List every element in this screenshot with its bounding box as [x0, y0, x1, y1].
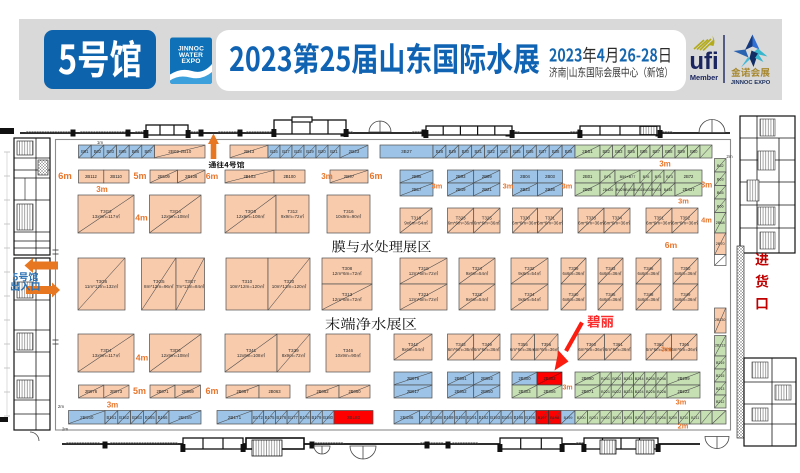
svg-text:2B213: 2B213	[715, 344, 725, 348]
svg-text:6x6m=36㎡: 6x6m=36㎡	[562, 270, 585, 276]
svg-text:2B103: 2B103	[243, 174, 256, 179]
svg-text:B192: B192	[479, 415, 489, 420]
svg-text:B02: B02	[94, 149, 102, 154]
svg-text:2B51: 2B51	[582, 149, 593, 154]
svg-text:6m*6m=36㎡: 6m*6m=36㎡	[578, 346, 604, 352]
svg-text:2B222: 2B222	[677, 389, 690, 394]
svg-text:2B09-2B10: 2B09-2B10	[168, 149, 191, 154]
svg-text:2B106: 2B106	[185, 174, 198, 179]
svg-text:2B29: 2B29	[583, 187, 593, 192]
svg-text:2B299: 2B299	[677, 376, 690, 381]
svg-text:B19: B19	[306, 149, 314, 154]
svg-text:B66: B66	[717, 205, 724, 209]
svg-text:2B72: 2B72	[684, 174, 694, 179]
svg-text:JINNOC EXPO: JINNOC EXPO	[731, 80, 771, 86]
svg-text:B16: B16	[270, 149, 278, 154]
svg-text:6x6m=36㎡: 6x6m=36㎡	[674, 296, 697, 302]
svg-text:6x6m=36㎡: 6x6m=36㎡	[637, 296, 660, 302]
svg-text:B199: B199	[564, 416, 573, 420]
svg-text:2B183: 2B183	[347, 415, 361, 420]
svg-text:B29: B29	[449, 149, 457, 154]
svg-text:2B68: 2B68	[716, 221, 725, 225]
svg-text:2B169: 2B169	[178, 415, 192, 420]
svg-text:B179: B179	[312, 415, 322, 420]
svg-text:B28: B28	[436, 149, 444, 154]
svg-text:2B01: 2B01	[583, 174, 593, 179]
svg-text:B222: B222	[612, 390, 621, 394]
svg-text:B21: B21	[330, 149, 338, 154]
svg-text:12m*6m=72㎡: 12m*6m=72㎡	[409, 270, 439, 276]
svg-text:B31: B31	[474, 149, 482, 154]
svg-text:B197: B197	[538, 416, 547, 420]
svg-text:B52: B52	[602, 149, 610, 154]
svg-text:B165: B165	[145, 415, 155, 420]
svg-text:9x6m=54㎡: 9x6m=54㎡	[404, 220, 428, 226]
svg-text:2B071: 2B071	[581, 389, 594, 394]
svg-text:B39: B39	[565, 149, 573, 154]
svg-text:6m*6m=36㎡: 6m*6m=36㎡	[537, 220, 563, 226]
svg-text:2B090: 2B090	[581, 376, 594, 381]
svg-text:B433: B433	[652, 188, 660, 192]
svg-text:B62: B62	[717, 164, 724, 168]
svg-text:2B95: 2B95	[412, 174, 422, 179]
svg-text:2B071: 2B071	[156, 389, 169, 394]
svg-text:6m: 6m	[205, 386, 218, 396]
svg-text:B213: B213	[716, 387, 724, 391]
svg-text:2m: 2m	[678, 422, 689, 431]
svg-text:B20: B20	[318, 149, 326, 154]
svg-text:B211: B211	[691, 416, 699, 420]
svg-text:2B073: 2B073	[110, 389, 123, 394]
svg-text:B37: B37	[539, 149, 547, 154]
svg-text:B200: B200	[577, 416, 586, 420]
svg-text:B166: B166	[158, 415, 168, 420]
svg-text:B431: B431	[634, 188, 642, 192]
svg-text:6m*6m=36㎡: 6m*6m=36㎡	[604, 220, 630, 226]
svg-text:3m: 3m	[503, 182, 514, 191]
svg-text:1m: 1m	[97, 140, 104, 145]
svg-text:8m*12m=96㎡: 8m*12m=96㎡	[144, 283, 174, 289]
svg-text:8x9m=72㎡: 8x9m=72㎡	[282, 352, 306, 358]
svg-text:12x9m=108㎡: 12x9m=108㎡	[161, 352, 190, 358]
svg-text:2B112: 2B112	[85, 174, 97, 179]
svg-text:2B302: 2B302	[543, 376, 556, 381]
svg-text:12m*6m=72㎡: 12m*6m=72㎡	[409, 296, 439, 302]
svg-text:2B063: 2B063	[268, 389, 281, 394]
svg-text:B176: B176	[276, 415, 286, 420]
svg-text:B32: B32	[487, 149, 495, 154]
svg-text:3m: 3m	[321, 172, 333, 181]
svg-text:B245: B245	[646, 377, 655, 381]
svg-text:6m*6m=36㎡: 6m*6m=36㎡	[510, 346, 536, 352]
svg-text:2B109: 2B109	[158, 174, 171, 179]
svg-text:B172: B172	[253, 415, 263, 420]
svg-text:ufi: ufi	[689, 48, 718, 75]
svg-text:B193: B193	[490, 415, 500, 420]
svg-text:6m: 6m	[206, 171, 219, 181]
svg-text:3m: 3m	[676, 398, 687, 407]
svg-text:B58: B58	[665, 149, 673, 154]
svg-text:2B079: 2B079	[407, 376, 420, 381]
svg-text:B198: B198	[550, 416, 559, 420]
svg-text:B226: B226	[657, 390, 666, 394]
svg-text:B57: B57	[652, 149, 660, 154]
svg-text:2m: 2m	[58, 404, 65, 409]
svg-text:B56: B56	[640, 149, 648, 154]
svg-text:B225: B225	[646, 390, 655, 394]
svg-text:2B171: 2B171	[228, 415, 242, 420]
svg-text:B429: B429	[616, 188, 624, 192]
svg-text:B206: B206	[635, 416, 643, 420]
svg-text:2B97: 2B97	[344, 174, 355, 179]
svg-text:B55: B55	[627, 149, 635, 154]
svg-text:B65: B65	[717, 191, 724, 195]
svg-text:2B160: 2B160	[80, 415, 94, 420]
svg-text:2B303: 2B303	[518, 389, 531, 394]
svg-text:6x6m=36㎡: 6x6m=36㎡	[637, 270, 660, 276]
svg-text:13x9m=117㎡: 13x9m=117㎡	[92, 352, 120, 358]
svg-text:B246: B246	[657, 377, 666, 381]
svg-text:6x6m=36㎡: 6x6m=36㎡	[674, 270, 697, 276]
svg-text:B219: B219	[716, 361, 724, 365]
svg-text:2B70: 2B70	[716, 242, 725, 246]
svg-text:B33: B33	[500, 149, 508, 154]
svg-text:3m: 3m	[562, 385, 572, 392]
svg-text:10x9m=90㎡: 10x9m=90㎡	[336, 213, 362, 219]
svg-text:12m*6m=72㎡: 12m*6m=72㎡	[332, 296, 362, 302]
svg-text:B162: B162	[119, 415, 129, 420]
svg-text:2B93: 2B93	[456, 174, 466, 179]
svg-text:12x9m=108㎡: 12x9m=108㎡	[237, 352, 266, 358]
svg-text:B195: B195	[514, 415, 524, 420]
svg-text:B07: B07	[144, 149, 152, 154]
svg-text:9x6m=54㎡: 9x6m=54㎡	[518, 270, 541, 276]
svg-text:2B017: 2B017	[407, 389, 420, 394]
svg-text:9x6m=54㎡: 9x6m=54㎡	[466, 296, 489, 302]
svg-text:6m*6m=36㎡: 6m*6m=36㎡	[646, 220, 672, 226]
svg-text:2B092: 2B092	[481, 376, 494, 381]
svg-text:B243: B243	[624, 377, 633, 381]
svg-text:2B052: 2B052	[455, 389, 468, 394]
svg-text:B187: B187	[420, 415, 430, 420]
svg-text:6m*6m=36㎡: 6m*6m=36㎡	[671, 346, 697, 352]
svg-text:10m*12m=120㎡: 10m*12m=120㎡	[230, 283, 265, 289]
svg-text:B209: B209	[669, 416, 677, 420]
svg-text:6m*6m=36㎡: 6m*6m=36㎡	[578, 220, 604, 226]
svg-text:6m: 6m	[58, 171, 72, 182]
svg-text:EXPO: EXPO	[181, 58, 200, 65]
svg-text:B03: B03	[106, 149, 114, 154]
svg-text:3m: 3m	[659, 160, 671, 169]
svg-text:3m: 3m	[562, 182, 573, 191]
svg-text:2B03: 2B03	[545, 174, 555, 179]
svg-text:B208: B208	[657, 416, 665, 420]
svg-text:3m: 3m	[661, 347, 671, 354]
svg-text:B244: B244	[635, 377, 644, 381]
svg-text:B212: B212	[716, 400, 724, 404]
svg-text:6m*6m=36㎡: 6m*6m=36㎡	[512, 220, 538, 226]
svg-text:B201: B201	[589, 416, 598, 420]
svg-text:2B306: 2B306	[543, 389, 556, 394]
svg-text:2B13: 2B13	[244, 149, 255, 154]
svg-text:6m*6m=36㎡: 6m*6m=36㎡	[672, 220, 698, 226]
svg-text:12x9m=108㎡: 12x9m=108㎡	[236, 213, 265, 219]
svg-text:6m: 6m	[369, 171, 382, 181]
svg-text:3m: 3m	[701, 181, 713, 190]
svg-text:6m*6m=36㎡: 6m*6m=36㎡	[448, 346, 474, 352]
svg-text:12x9m=108㎡: 12x9m=108㎡	[161, 213, 190, 219]
svg-text:B177: B177	[288, 415, 298, 420]
svg-text:B73: B73	[666, 175, 673, 179]
svg-text:5m: 5m	[133, 171, 146, 181]
svg-text:2B19: 2B19	[456, 187, 466, 192]
svg-text:6m*6m=36㎡: 6m*6m=36㎡	[448, 220, 474, 226]
svg-text:B189: B189	[444, 415, 454, 420]
svg-text:2B23: 2B23	[520, 187, 530, 192]
svg-text:B202: B202	[601, 416, 609, 420]
svg-text:3m: 3m	[432, 182, 443, 191]
svg-text:B215: B215	[716, 374, 724, 378]
svg-text:3B27: 3B27	[401, 149, 412, 154]
svg-text:6m*6m=36㎡: 6m*6m=36㎡	[533, 346, 559, 352]
svg-text:2B04: 2B04	[520, 174, 530, 179]
svg-text:B241: B241	[601, 377, 610, 381]
svg-text:2B230: 2B230	[715, 318, 725, 322]
svg-text:B242: B242	[612, 377, 621, 381]
svg-text:2B060: 2B060	[348, 389, 361, 394]
svg-text:B190: B190	[455, 415, 465, 420]
svg-text:B178: B178	[300, 415, 310, 420]
svg-text:B161: B161	[107, 415, 117, 420]
svg-text:2B23: 2B23	[349, 149, 360, 154]
svg-text:9x6m=54㎡: 9x6m=54㎡	[402, 346, 425, 352]
svg-text:B06: B06	[132, 149, 140, 154]
svg-text:9x6m=54㎡: 9x6m=54㎡	[518, 296, 541, 302]
svg-text:3m: 3m	[678, 197, 689, 206]
svg-text:2B17: 2B17	[412, 187, 422, 192]
svg-text:B223: B223	[624, 390, 633, 394]
svg-text:B01: B01	[81, 149, 89, 154]
svg-text:B53: B53	[615, 149, 623, 154]
svg-text:2B076: 2B076	[85, 389, 98, 394]
svg-text:B210: B210	[680, 416, 688, 420]
svg-text:B05: B05	[119, 149, 127, 154]
svg-text:B180: B180	[323, 415, 333, 420]
svg-text:2B26: 2B26	[545, 187, 555, 192]
svg-text:2B420: 2B420	[603, 188, 613, 192]
svg-text:B63: B63	[717, 178, 724, 182]
svg-text:2B067: 2B067	[236, 389, 249, 394]
svg-text:11m*12m=132㎡: 11m*12m=132㎡	[85, 283, 119, 289]
svg-text:B17: B17	[282, 149, 290, 154]
svg-text:4m: 4m	[136, 353, 149, 363]
svg-text:6m: 6m	[665, 240, 678, 250]
svg-text:2m: 2m	[726, 154, 733, 159]
svg-text:6m*6m=36㎡: 6m*6m=36㎡	[605, 346, 631, 352]
svg-text:B30: B30	[462, 149, 470, 154]
svg-text:2B100: 2B100	[283, 174, 296, 179]
svg-text:2B89: 2B89	[482, 174, 492, 179]
svg-text:B36: B36	[526, 149, 534, 154]
svg-text:10x9m=90㎡: 10x9m=90㎡	[335, 352, 361, 358]
svg-text:3m: 3m	[96, 185, 108, 194]
svg-text:12m*6m=72㎡: 12m*6m=72㎡	[332, 270, 362, 276]
svg-text:6x6m=36㎡: 6x6m=36㎡	[562, 296, 585, 302]
svg-text:2B300: 2B300	[518, 376, 531, 381]
svg-text:B221: B221	[601, 390, 610, 394]
svg-text:B207: B207	[646, 416, 654, 420]
svg-text:B191: B191	[467, 415, 477, 420]
svg-text:B203: B203	[613, 416, 621, 420]
svg-text:4m: 4m	[135, 213, 148, 223]
svg-text:2m: 2m	[62, 427, 69, 432]
svg-text:B224: B224	[635, 390, 644, 394]
svg-text:B188: B188	[432, 415, 442, 420]
svg-text:6x6m=36㎡: 6x6m=36㎡	[599, 296, 622, 302]
svg-text:B75: B75	[655, 175, 662, 179]
svg-text:B79: B79	[604, 175, 611, 179]
svg-text:2B062: 2B062	[316, 389, 329, 394]
svg-text:2B437: 2B437	[682, 187, 695, 192]
svg-text:2B21: 2B21	[482, 187, 492, 192]
svg-text:2B050: 2B050	[481, 389, 494, 394]
svg-text:4m: 4m	[701, 216, 712, 225]
svg-text:B175: B175	[265, 415, 275, 420]
svg-text:6x6m=36㎡: 6x6m=36㎡	[599, 270, 622, 276]
svg-text:B196: B196	[525, 415, 535, 420]
svg-text:B59+B77: B59+B77	[620, 175, 636, 179]
svg-text:B38: B38	[552, 149, 560, 154]
svg-text:B163: B163	[132, 415, 142, 420]
svg-text:5m: 5m	[133, 386, 146, 396]
svg-text:B59: B59	[677, 149, 685, 154]
svg-text:B60: B60	[690, 149, 698, 154]
svg-text:6m*6m=36㎡: 6m*6m=36㎡	[474, 346, 500, 352]
svg-text:B76: B76	[643, 175, 650, 179]
svg-text:B432: B432	[643, 188, 651, 192]
svg-text:2B186: 2B186	[400, 415, 414, 420]
svg-text:3m: 3m	[107, 401, 119, 410]
svg-text:Member: Member	[690, 73, 718, 82]
svg-text:B35: B35	[513, 149, 521, 154]
svg-text:B430: B430	[625, 188, 633, 192]
svg-text:10m*12m=120㎡: 10m*12m=120㎡	[272, 283, 307, 289]
svg-text:B435: B435	[664, 188, 672, 192]
svg-text:7m*12m=84㎡: 7m*12m=84㎡	[176, 283, 205, 289]
svg-text:B205: B205	[624, 416, 632, 420]
svg-text:6m*6m=36㎡: 6m*6m=36㎡	[474, 220, 500, 226]
svg-text:2B110: 2B110	[110, 174, 122, 179]
svg-text:2B091: 2B091	[455, 376, 468, 381]
svg-text:2B069: 2B069	[182, 389, 195, 394]
svg-text:13x9m=117㎡: 13x9m=117㎡	[92, 213, 120, 219]
svg-text:B18: B18	[294, 149, 302, 154]
svg-text:9x9m=72㎡: 9x9m=72㎡	[281, 213, 305, 219]
svg-text:9x6m=54㎡: 9x6m=54㎡	[466, 270, 489, 276]
svg-text:B194: B194	[502, 415, 512, 420]
